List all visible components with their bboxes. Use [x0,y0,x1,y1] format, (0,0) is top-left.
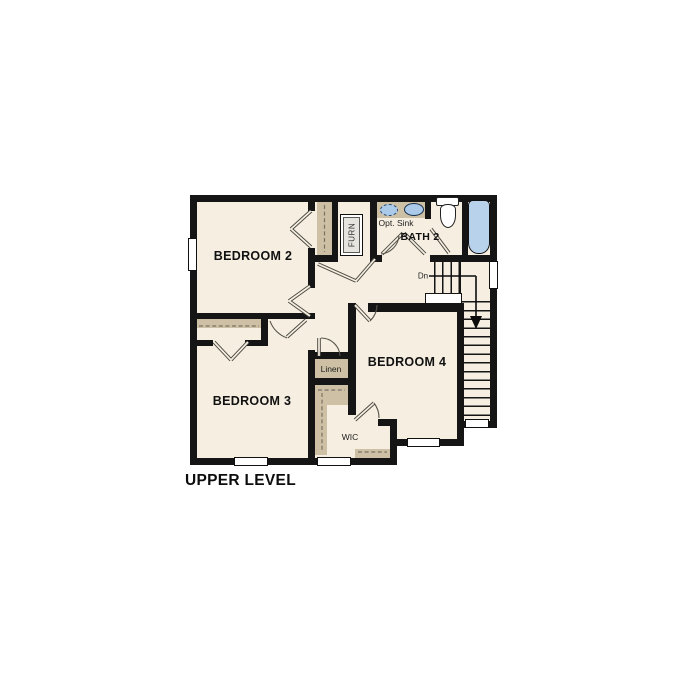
window-bedroom2-left [188,238,197,271]
wic-shelf-left [315,405,327,455]
toilet-bowl [440,204,456,228]
wall-bath-bottom-right [430,255,497,262]
wall-linen-bottom [308,378,355,385]
furnace-unit-inner: FURN [343,217,360,253]
window-bedroom4-bottom [407,438,440,447]
stairs-down-label: Dn [418,272,428,281]
window-bedroom3-bottom [234,457,268,466]
wall-bedroom3-closet-bottom-left [195,340,213,346]
bedroom2-closet-shelf [317,202,332,255]
stair-railing [425,293,462,304]
linen-label: Linen [321,364,342,374]
wall-bedroom2-right-upper [308,195,315,211]
window-stairwell-right [489,261,498,289]
optional-sink [380,204,398,216]
floor-plan-page: FURN [0,0,687,687]
furnace-unit: FURN [340,214,363,256]
footprint-notch-bedroom4 [397,446,464,465]
wic-label: WIC [342,432,359,442]
wall-wic-corner [378,419,397,426]
wall-bath-bottom-left [370,255,382,262]
wall-exterior-right [490,195,497,428]
wall-bedroom4-left [348,303,356,415]
wic-shelf-bottom [355,449,390,458]
wall-bedroom3-closet-bottom-right [245,340,268,346]
sink [404,203,424,216]
window-stairwell-bottom [465,419,489,428]
stairs-lower-flight [461,294,490,420]
wall-bedroom3-right [308,350,315,465]
plan-title: UPPER LEVEL [185,472,296,490]
wic-shelf-top [315,385,348,405]
window-wic-bottom [317,457,351,466]
bath2-label: BATH 2 [401,231,440,243]
bedroom3-closet-shelf [197,319,261,328]
bedroom4-label: BEDROOM 4 [368,355,446,369]
bedroom2-label: BEDROOM 2 [214,249,292,263]
wall-bedroom2-bottom [195,313,315,319]
footprint-notch-stairs [464,428,497,465]
opt-sink-label: Opt. Sink [379,218,414,228]
bathtub [468,200,490,254]
wall-bedroom4-top [368,303,457,312]
furnace-label: FURN [347,223,356,247]
bedroom3-label: BEDROOM 3 [213,394,291,408]
wall-hall-closet-bottom [313,255,338,262]
stairs-upper-flight [427,262,460,294]
wall-furnace-divider [332,195,338,257]
wall-bath-left [370,195,377,262]
wall-vanity-stub [425,195,431,219]
wall-exterior-bottom [190,458,397,465]
wall-exterior-left [190,195,197,465]
wall-bedroom2-right-lower [308,248,315,288]
